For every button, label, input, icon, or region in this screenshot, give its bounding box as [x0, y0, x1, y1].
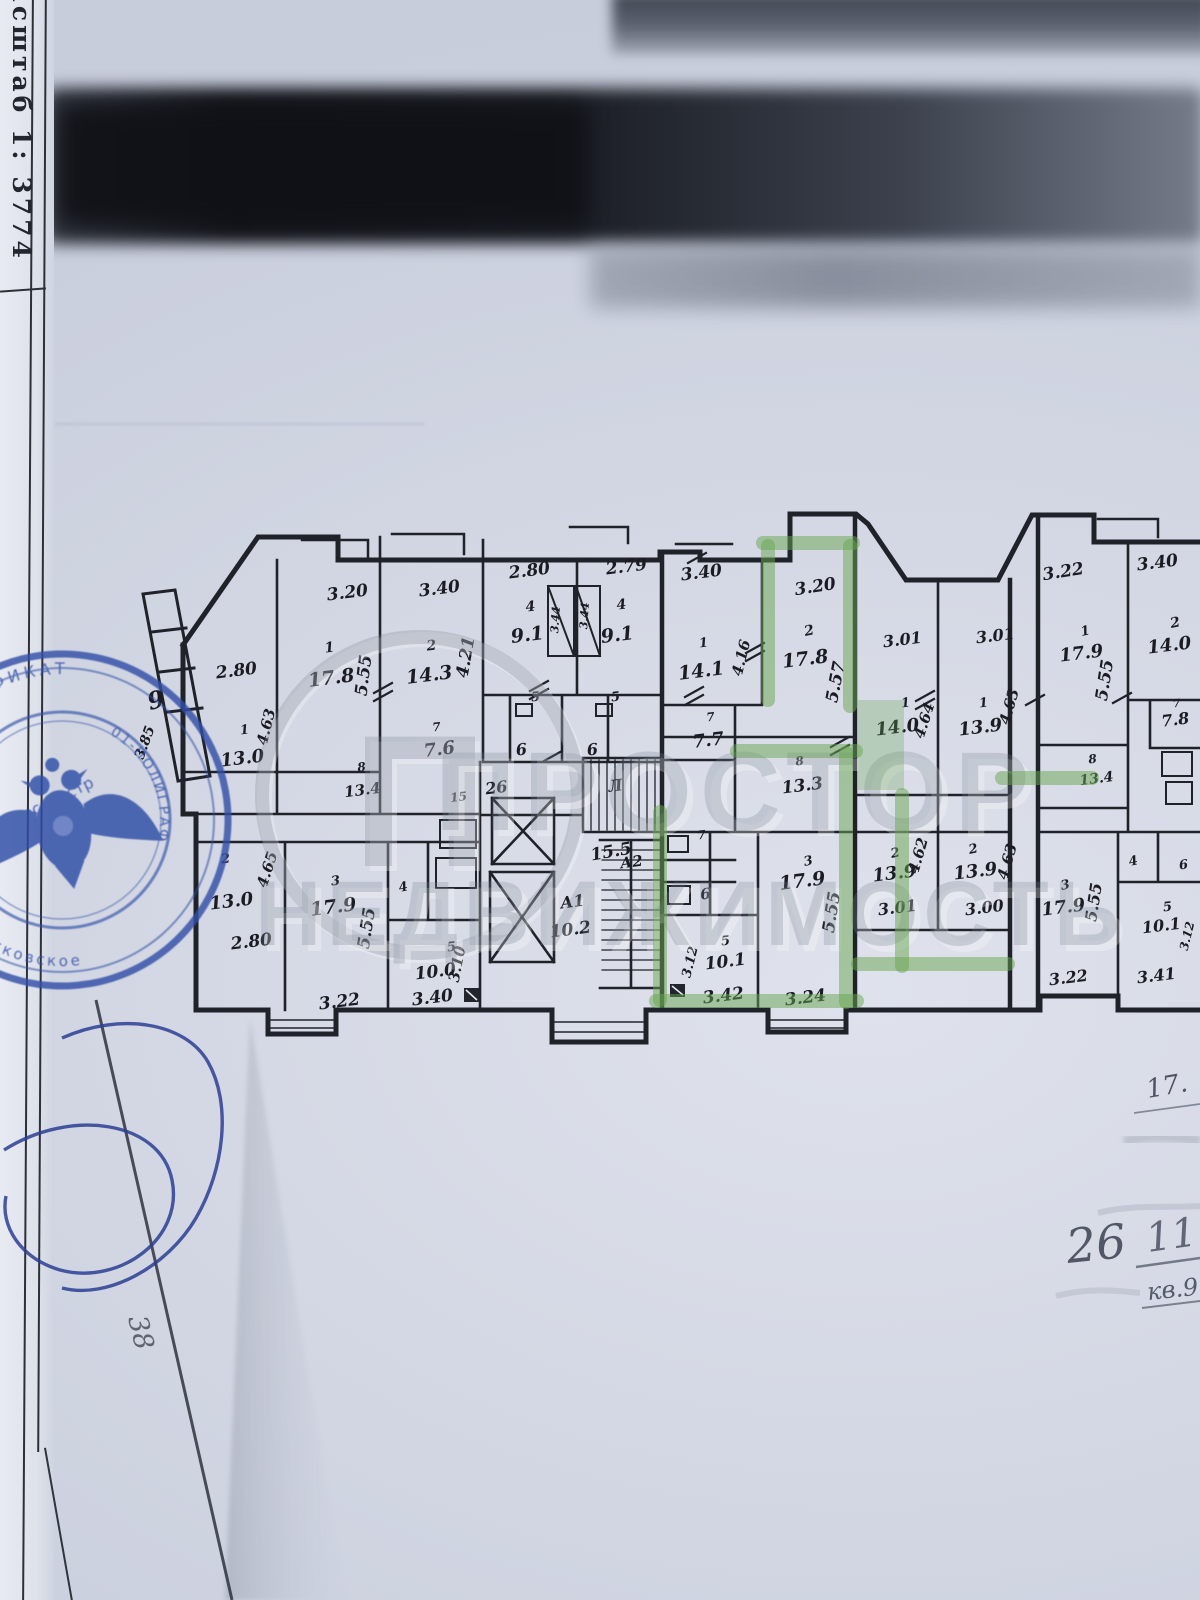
- plan-label: 2: [802, 622, 816, 640]
- fold-edge-line: [96, 1000, 232, 1600]
- plan-label: 7: [1172, 697, 1182, 711]
- plan-label: 14.3: [405, 661, 454, 688]
- scanned-floorplan-photo: Масштаб 1: 3774: [0, 0, 1200, 1600]
- plan-label: 2.80: [507, 559, 552, 584]
- porch-steps: [268, 1020, 846, 1032]
- plan-label: 4: [1127, 853, 1139, 870]
- handwritten-floor-note: 17.: [1144, 1068, 1190, 1105]
- signature-loop-2: [4, 1125, 173, 1273]
- svg-text:СЕРТИФИКАТ: СЕРТИФИКАТ: [0, 655, 79, 743]
- plan-label: 14.1: [677, 657, 726, 684]
- fold-shadow: [225, 1018, 345, 1600]
- plan-label: 8: [1088, 751, 1099, 766]
- plan-label: 1: [324, 639, 336, 656]
- handwritten-corner-mark: 38: [121, 1312, 159, 1353]
- plan-label: 3.44: [577, 602, 592, 630]
- plan-label: 3.01: [882, 628, 923, 652]
- plan-label: 17.8: [781, 645, 830, 672]
- pen-signature: [4, 1024, 222, 1291]
- plan-label: 9.1: [510, 622, 545, 648]
- plan-label: 1: [239, 723, 250, 739]
- plan-label: 5: [610, 690, 621, 706]
- plan-label: 4: [616, 596, 628, 613]
- plan-label: 2.80: [214, 659, 259, 684]
- registry-stamp: СЕРТИФИКАТ ное государственное Московско…: [0, 628, 254, 1013]
- plan-label: 1: [1079, 623, 1091, 640]
- plan-label: 3.41: [1136, 964, 1177, 988]
- handwritten-flat-number: 11: [1143, 1209, 1200, 1262]
- plan-label: 3.20: [793, 574, 837, 600]
- plan-label: 3.44: [548, 606, 563, 634]
- plan-label: 5: [1162, 900, 1173, 916]
- faint-text-smudge-2: [1056, 1290, 1140, 1296]
- handwritten-entry-number: 26: [1063, 1214, 1129, 1275]
- stamp-arc-top: СЕРТИФИКАТ: [0, 655, 79, 743]
- signature-loop-1: [62, 1024, 222, 1291]
- plan-label: 9.1: [600, 622, 635, 648]
- plan-label: 7.8: [1160, 708, 1190, 730]
- floorplan-canvas: 3.20117.85.553.40214.34.212.80113.04.639…: [0, 0, 1200, 1600]
- plan-label: 3.40: [411, 986, 455, 1011]
- plan-label: 4.63: [996, 687, 1023, 727]
- plan-label: 3.20: [326, 581, 370, 606]
- plan-label: 1: [978, 696, 989, 712]
- plan-label: 3.40: [680, 561, 724, 586]
- watermark-line2: НЕДВИЖИМОСТЬ: [255, 863, 1125, 965]
- plan-label: 10.1: [1141, 914, 1182, 938]
- highlight-patch: [858, 700, 904, 790]
- plan-label: 4: [525, 598, 537, 615]
- plan-label: 2: [1168, 614, 1182, 632]
- plan-label: 3.40: [1136, 551, 1180, 576]
- plan-label: 1: [698, 636, 709, 652]
- plan-label: 3.40: [418, 577, 462, 602]
- plan-label: 14.0: [1146, 632, 1193, 658]
- handwritten-apartment-note: кв.9: [1146, 1273, 1200, 1306]
- smudged-stamp-line: [1124, 1137, 1200, 1142]
- plan-label: 3.22: [1041, 559, 1085, 585]
- plan-label: 2.79: [604, 555, 649, 580]
- plan-label: 6: [1178, 858, 1189, 874]
- note-underline-1: [1134, 1104, 1200, 1113]
- handwritten-notes: 17. 26 11 кв.9: [1056, 1068, 1200, 1308]
- plan-label: 7: [706, 709, 717, 724]
- note-underline-2: [1136, 1258, 1200, 1267]
- plan-label: 4.16: [728, 637, 754, 677]
- plan-label: 5.55: [1092, 658, 1118, 702]
